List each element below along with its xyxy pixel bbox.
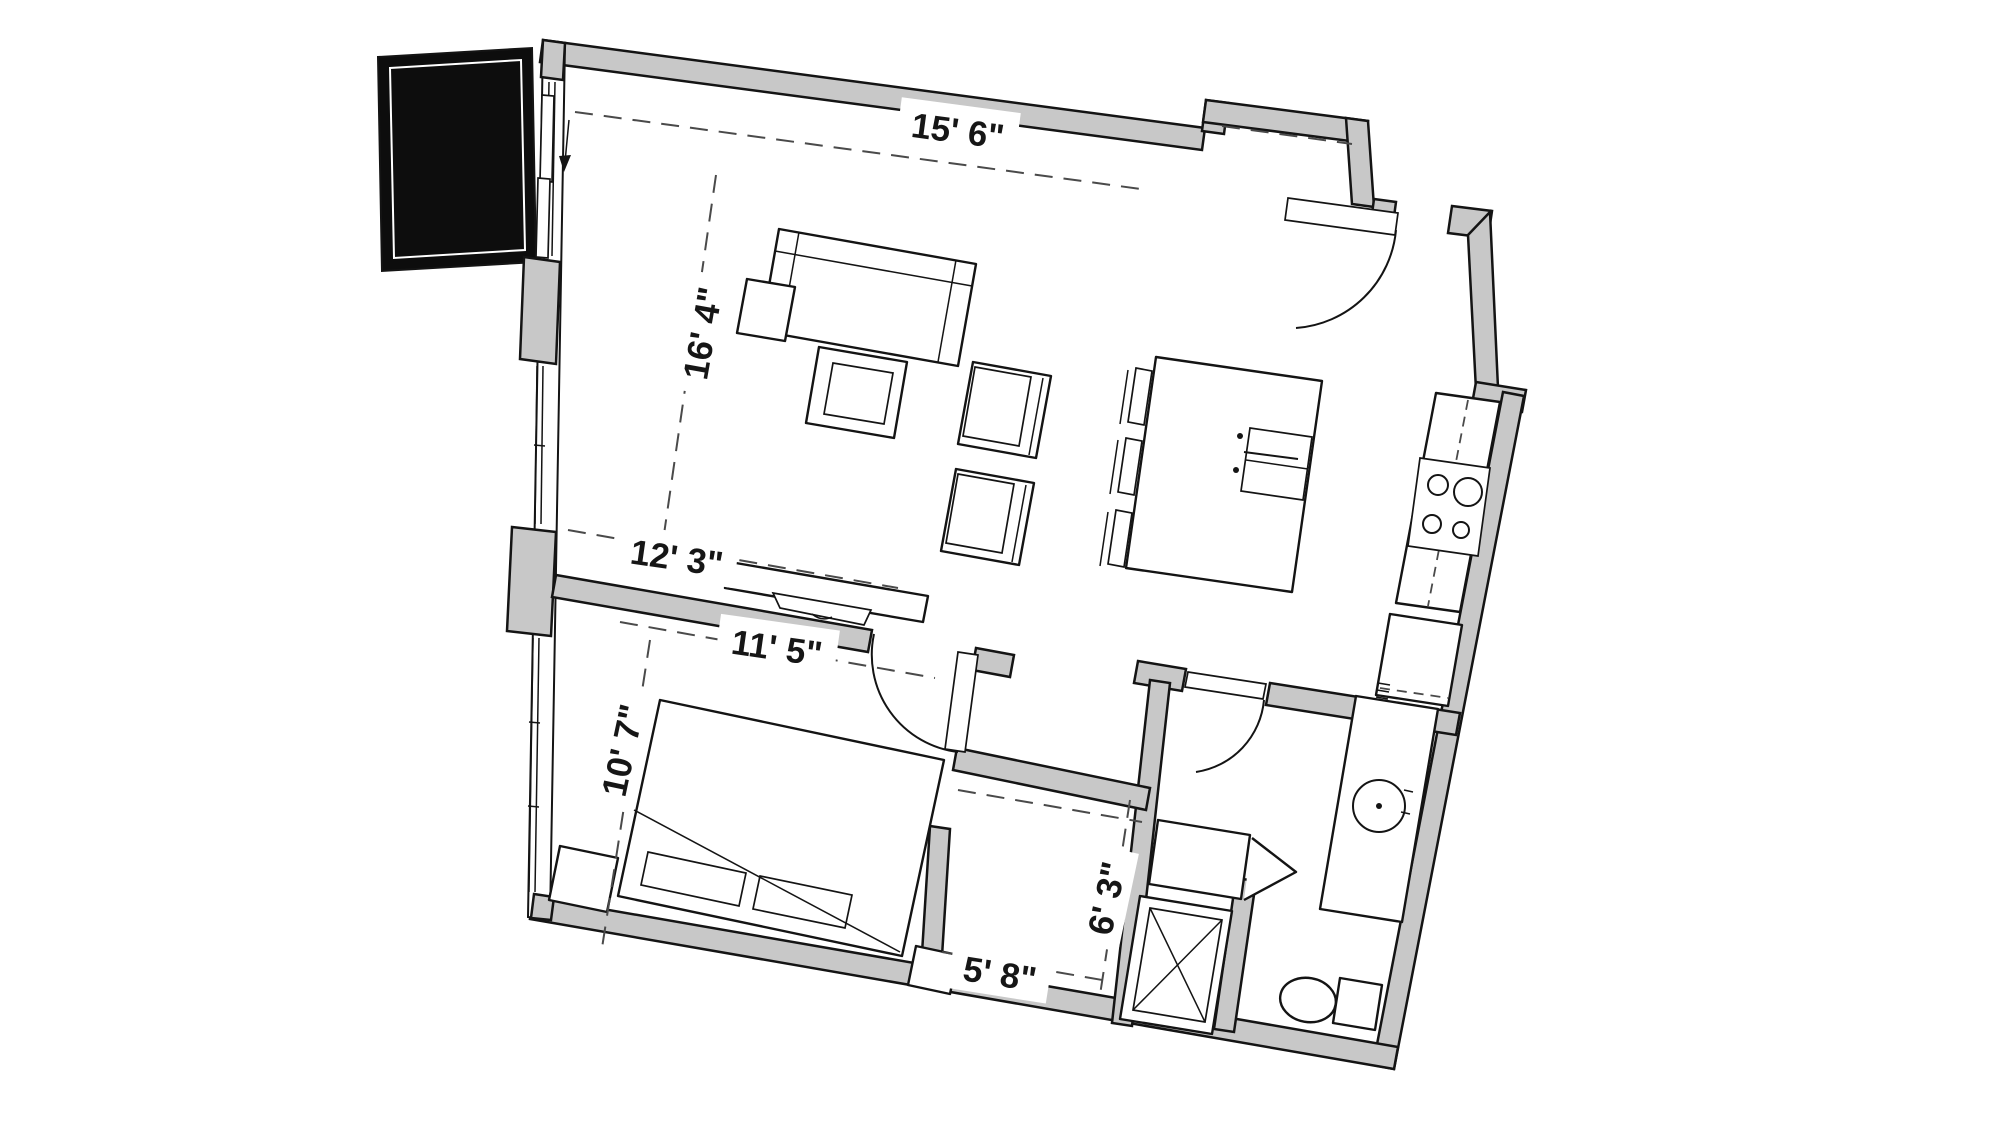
entry-door (1285, 198, 1398, 328)
balcony (378, 48, 536, 271)
wall-entry-nook-right (1346, 118, 1374, 207)
armchair-2 (941, 469, 1034, 565)
bifold-closet (1149, 820, 1296, 900)
bed (618, 700, 944, 956)
cooktop (1408, 458, 1490, 556)
toilet (1277, 973, 1382, 1030)
dim-living-width-bottom: 12' 3" (614, 524, 740, 588)
wall-hall-bottom (953, 748, 1150, 810)
armchair-1 (958, 362, 1051, 458)
wall-left-top-chunk (541, 40, 565, 80)
stacked-washer-dryer (1120, 896, 1232, 1034)
wall-left-bedroom-chunk (507, 527, 556, 636)
nightstand-left (549, 846, 618, 912)
wall-top (540, 40, 1205, 150)
floor-plan-drawing: 15' 6" 16' 4" 12' 3" 11' 5" 10' 7" 6' 3"… (0, 0, 2000, 1126)
coffee-table (806, 347, 907, 438)
end-table (737, 279, 795, 341)
lower-cabinet (1376, 614, 1462, 706)
bedroom-door (872, 634, 978, 752)
wall-left-mid-chunk (520, 257, 560, 364)
kitchen-island (1100, 357, 1322, 592)
dim-living-depth: 16' 4" (667, 270, 735, 397)
wall-entry-nook-top (1203, 100, 1368, 143)
wall-right-upper (1468, 212, 1498, 390)
sink-drain (1376, 803, 1382, 809)
floor-plan-page: 15' 6" 16' 4" 12' 3" 11' 5" 10' 7" 6' 3"… (0, 0, 2000, 1126)
wall-bedroom-door-jamb (972, 648, 1014, 677)
bathroom-door (1185, 672, 1266, 772)
